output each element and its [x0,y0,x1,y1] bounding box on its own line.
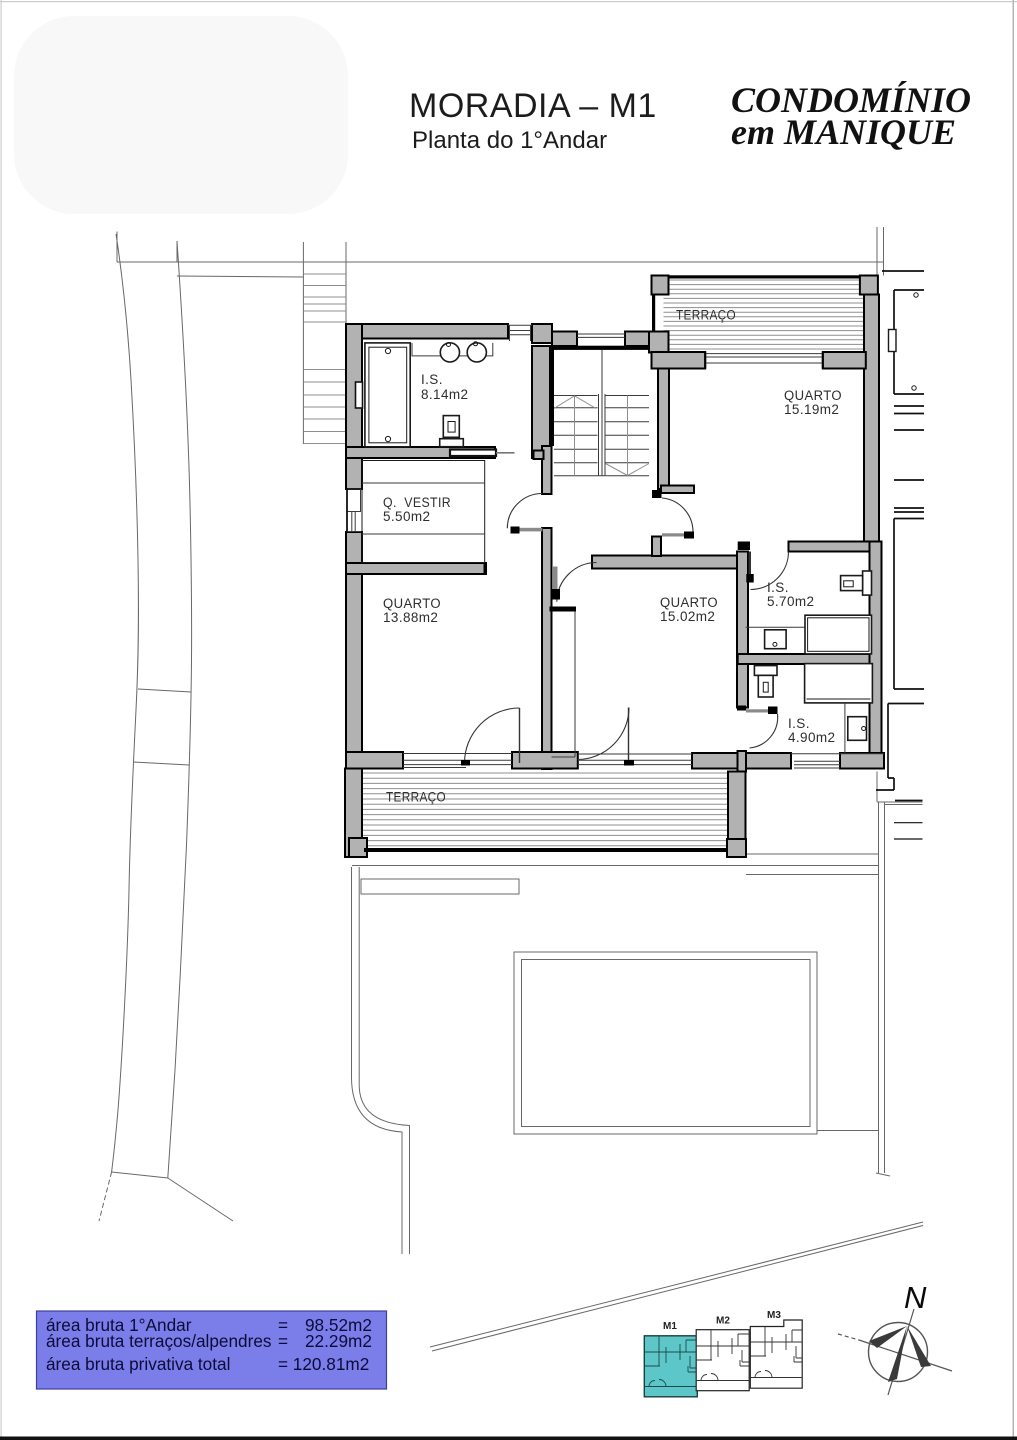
svg-text:QUARTO: QUARTO [660,595,718,610]
svg-text:Planta do 1°Andar: Planta do 1°Andar [412,127,607,154]
svg-text:13.88m2: 13.88m2 [383,610,438,625]
svg-text:15.02m2: 15.02m2 [660,609,715,624]
svg-text:N: N [904,1280,927,1315]
svg-text:4.90m2: 4.90m2 [788,730,835,745]
svg-text:M3: M3 [767,1310,781,1321]
svg-text:22.29m2: 22.29m2 [305,1331,372,1351]
svg-text:5.70m2: 5.70m2 [767,594,814,609]
svg-text:TERRAÇO: TERRAÇO [386,790,446,805]
svg-text:área bruta privativa total: área bruta privativa total [46,1354,230,1374]
svg-text:I.S.: I.S. [767,580,789,595]
svg-text:em MANIQUE: em MANIQUE [731,112,956,152]
svg-text:I.S.: I.S. [788,716,810,731]
svg-text:= 120.81m2: = 120.81m2 [278,1354,369,1374]
svg-text:M2: M2 [716,1316,730,1327]
svg-text:I.S.: I.S. [421,372,443,387]
svg-text:MORADIA – M1: MORADIA – M1 [409,87,657,125]
svg-text:TERRAÇO: TERRAÇO [676,308,736,323]
svg-text:5.50m2: 5.50m2 [383,509,430,524]
svg-text:=: = [278,1331,288,1351]
svg-text:M1: M1 [663,1321,677,1332]
svg-text:QUARTO: QUARTO [784,388,842,403]
svg-text:Q. VESTIR: Q. VESTIR [383,495,451,510]
svg-text:8.14m2: 8.14m2 [421,387,468,402]
svg-text:15.19m2: 15.19m2 [784,402,839,417]
svg-text:QUARTO: QUARTO [383,596,441,611]
svg-text:área bruta terraços/alpendres: área bruta terraços/alpendres [46,1331,271,1351]
